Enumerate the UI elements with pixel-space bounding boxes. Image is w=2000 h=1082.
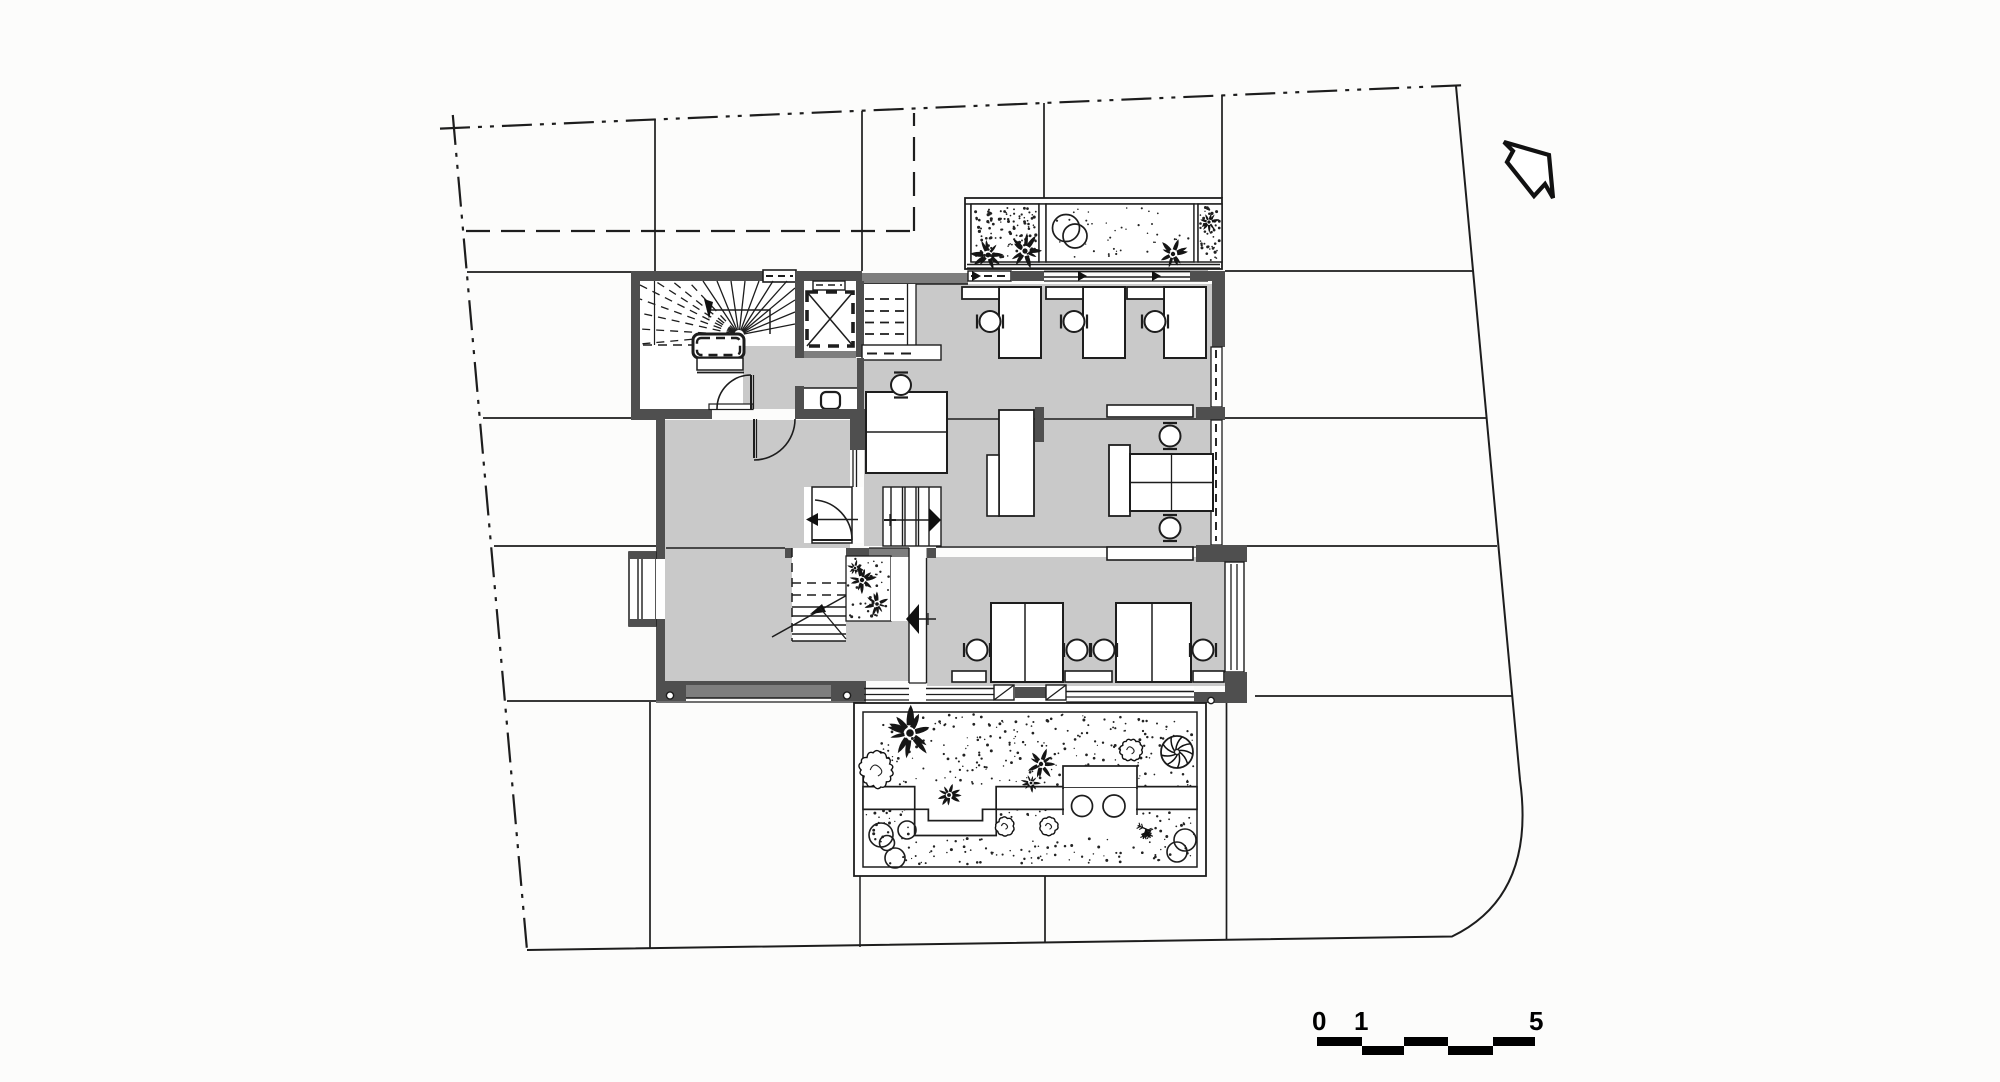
svg-text:0: 0 — [1312, 1006, 1326, 1036]
svg-text:5: 5 — [1529, 1006, 1543, 1036]
svg-text:1: 1 — [1354, 1006, 1368, 1036]
